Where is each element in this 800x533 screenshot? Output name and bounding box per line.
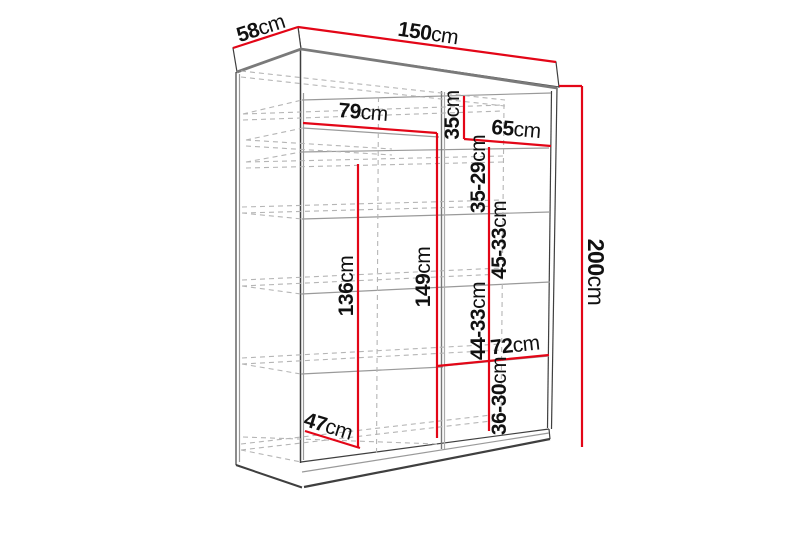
right-panel-outer-edge [552, 88, 558, 429]
diagram-svg: 58cm 150cm 79cm 35cm 65cm 35-29cm 45-33c… [0, 0, 800, 533]
lower-mid-shelf-back-a [242, 268, 502, 280]
mid-shelf-edge [302, 212, 550, 219]
floor-back-edge-a [241, 414, 500, 444]
left-upper-shelf-side [246, 128, 303, 140]
dim-label-lower-right-width: 72cm [489, 331, 540, 359]
lower-mid-shelf-side [242, 286, 301, 294]
left-panel-bottom-edge [236, 465, 302, 488]
lower-mid-shelf-back-b [242, 274, 502, 286]
dim-label-right-gap-1: 35-29cm [467, 135, 490, 213]
low-shelf-side [242, 364, 301, 374]
plinth-bottom-edge [304, 439, 550, 487]
dim-label-left-hanging-height: 136cm [335, 256, 358, 317]
floor-back-edge-b [241, 420, 500, 450]
mid-shelf-back-b [242, 206, 502, 213]
dim-label-right-shelf-width: 65cm [490, 115, 541, 142]
dim-label-left-shelf-width: 79cm [338, 99, 389, 126]
dim-label-height: 200cm [583, 239, 609, 306]
low-shelf-left-edge [301, 367, 443, 374]
interior-dashed-lines [241, 71, 505, 462]
upper-shelf-back-a [246, 156, 503, 162]
low-shelf-back-b [242, 350, 502, 364]
top-shelf-side-edge [243, 100, 302, 114]
wardrobe-dimension-diagram: 58cm 150cm 79cm 35cm 65cm 35-29cm 45-33c… [0, 0, 800, 533]
upper-shelf-back-b [246, 162, 503, 168]
dim-label-right-top-gap: 35cm [441, 90, 464, 139]
floor-side-edge [241, 450, 301, 462]
right-panel-inner-edge [548, 91, 552, 428]
mid-shelf-back-a [242, 200, 502, 207]
dimension-lines [233, 27, 582, 448]
dim-label-right-gap-3: 44-33cm [467, 282, 490, 360]
dim-label-middle-height: 149cm [412, 247, 435, 308]
plinth-right-end [549, 429, 550, 439]
dim-label-right-gap-2: 45-33cm [488, 201, 511, 279]
dim-label-right-gap-4: 36-30cm [488, 357, 511, 435]
low-shelf-back-a [242, 344, 502, 358]
mid-shelf-side [242, 213, 302, 219]
dim-line-left-shelf-width [303, 123, 437, 133]
